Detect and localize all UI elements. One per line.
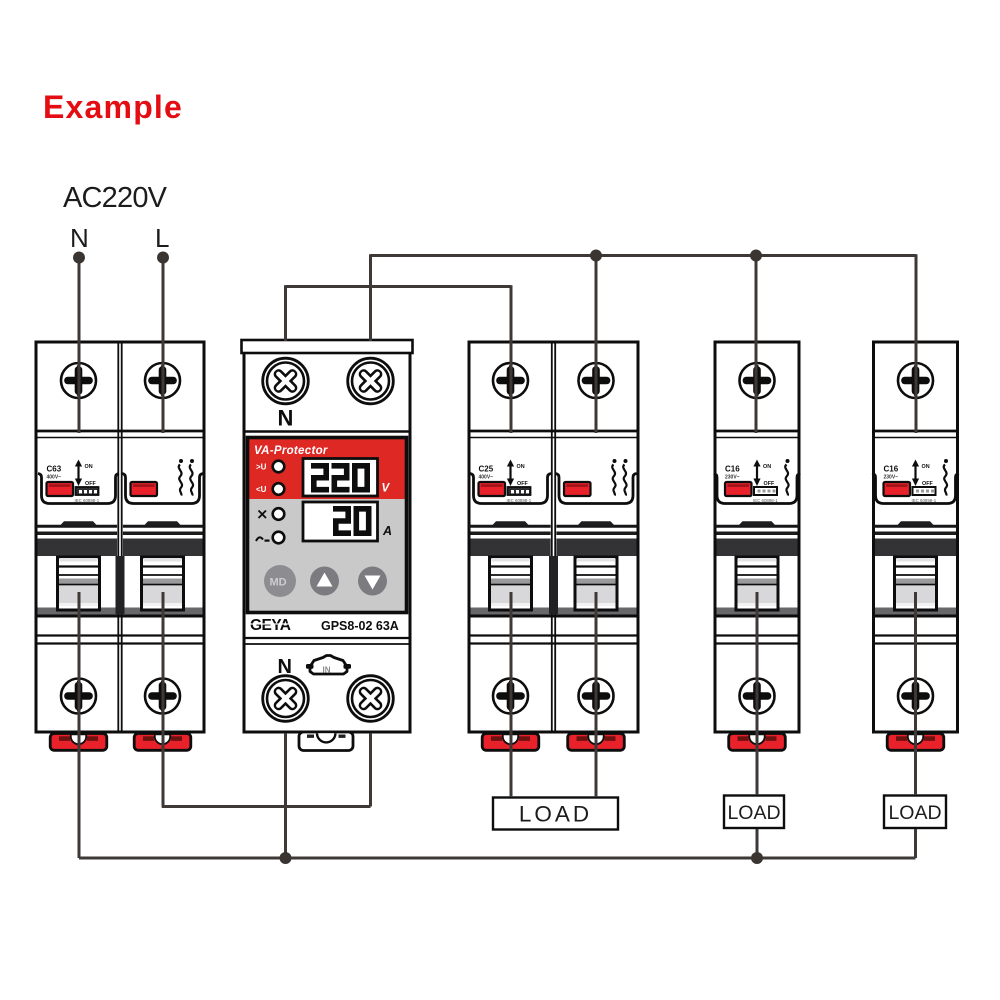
- svg-text:400V~: 400V~: [479, 475, 494, 481]
- svg-text:C63: C63: [47, 465, 62, 474]
- svg-text:C16: C16: [725, 465, 740, 474]
- svg-text:GEYA: GEYA: [250, 617, 291, 634]
- svg-text:A: A: [382, 524, 392, 538]
- svg-text:IN: IN: [323, 666, 331, 675]
- svg-text:VA-Protector: VA-Protector: [254, 445, 328, 457]
- svg-text:ON: ON: [763, 464, 771, 470]
- svg-text:IEC 60898-1: IEC 60898-1: [75, 498, 100, 503]
- svg-text:ON: ON: [517, 464, 525, 470]
- svg-text:N: N: [278, 406, 294, 431]
- svg-text:GPS8-02 63A: GPS8-02 63A: [321, 619, 399, 633]
- svg-text:400V~: 400V~: [47, 475, 62, 481]
- svg-text:IEC 60898-1: IEC 60898-1: [507, 498, 532, 503]
- svg-text:LOAD: LOAD: [888, 802, 941, 824]
- svg-text:C16: C16: [884, 465, 899, 474]
- svg-text:LOAD: LOAD: [727, 802, 780, 824]
- svg-text:230V~: 230V~: [884, 475, 899, 481]
- svg-text:AC220V: AC220V: [63, 182, 168, 214]
- svg-text:>U: >U: [256, 463, 267, 472]
- svg-text:C25: C25: [479, 465, 494, 474]
- svg-text:MD: MD: [270, 577, 287, 589]
- svg-text:LOAD: LOAD: [519, 802, 592, 827]
- svg-text:IEC 60898-1: IEC 60898-1: [753, 498, 778, 503]
- svg-text:230V~: 230V~: [725, 475, 740, 481]
- svg-text:ON: ON: [85, 464, 93, 470]
- svg-text:<U: <U: [256, 485, 267, 494]
- svg-text:ON: ON: [922, 464, 930, 470]
- svg-text:L: L: [155, 223, 169, 253]
- svg-text:N: N: [70, 223, 89, 253]
- svg-text:V: V: [382, 483, 391, 495]
- svg-text:IEC 60898-1: IEC 60898-1: [912, 498, 937, 503]
- svg-text:Example: Example: [43, 89, 183, 125]
